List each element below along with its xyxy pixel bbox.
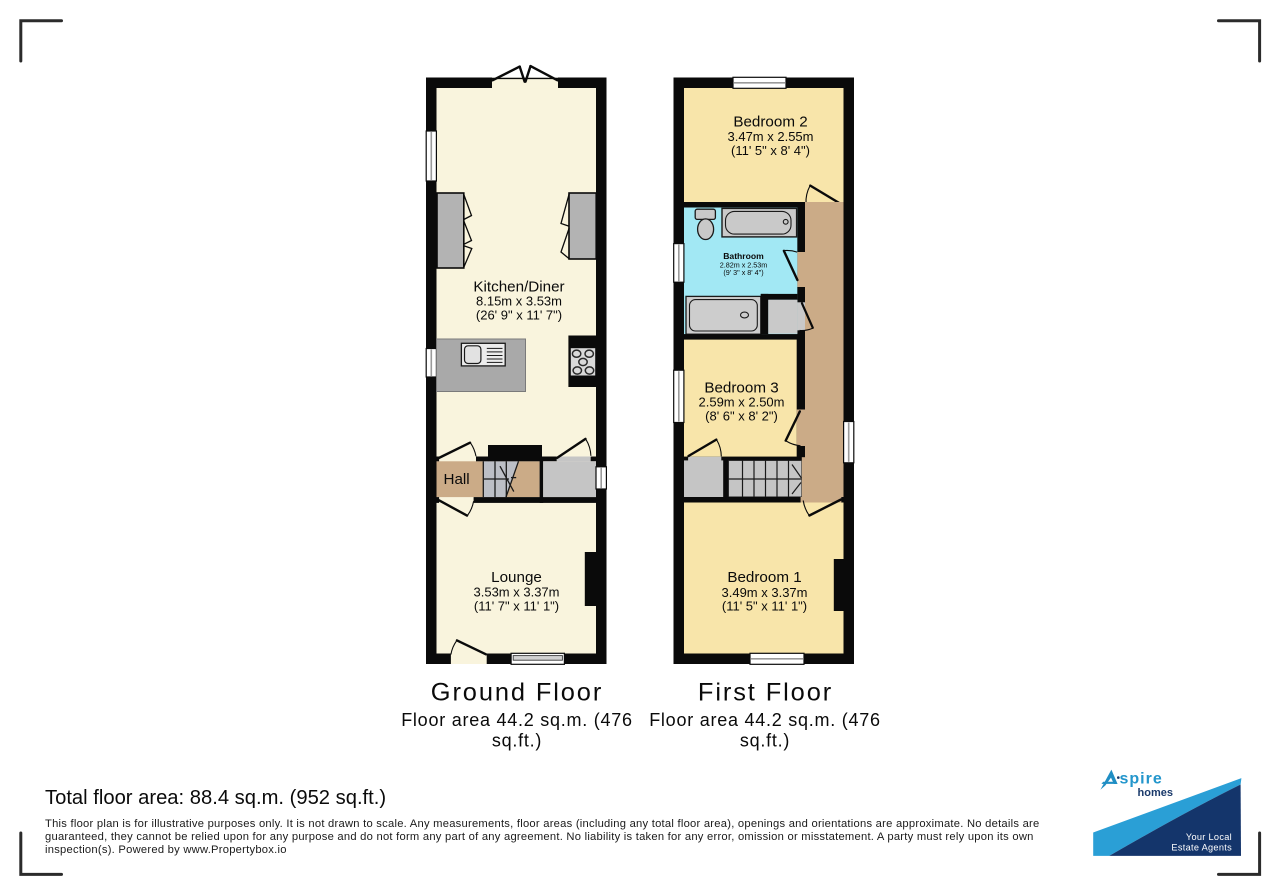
svg-text:Floor area 44.2 sq.m. (476: Floor area 44.2 sq.m. (476: [649, 710, 881, 730]
svg-text:Estate Agents: Estate Agents: [1171, 843, 1232, 853]
svg-text:3.47m x 2.55m: 3.47m x 2.55m: [728, 129, 814, 144]
svg-text:This floor plan is for illustr: This floor plan is for illustrative purp…: [45, 818, 1040, 830]
svg-text:sq.ft.): sq.ft.): [492, 731, 542, 751]
svg-text:Your Local: Your Local: [1186, 832, 1232, 842]
svg-text:sq.ft.): sq.ft.): [740, 731, 790, 751]
svg-text:(11' 7" x 11' 1"): (11' 7" x 11' 1"): [474, 598, 559, 613]
svg-text:homes: homes: [1138, 787, 1173, 799]
svg-text:(26' 9" x 11' 7"): (26' 9" x 11' 7"): [476, 308, 562, 323]
svg-text:2.59m x 2.50m: 2.59m x 2.50m: [699, 394, 785, 409]
svg-text:Ground Floor: Ground Floor: [431, 679, 603, 707]
svg-text:Bathroom: Bathroom: [723, 251, 764, 261]
svg-text:spire: spire: [1120, 770, 1163, 787]
svg-text:Bedroom 2: Bedroom 2: [733, 114, 807, 131]
svg-text:guaranteed, they cannot be rel: guaranteed, they cannot be relied upon f…: [45, 831, 1034, 843]
svg-text:(9' 3" x 8' 4"): (9' 3" x 8' 4"): [723, 268, 763, 277]
svg-text:Floor area 44.2 sq.m. (476: Floor area 44.2 sq.m. (476: [401, 710, 633, 730]
svg-text:inspection(s). Powered by www.: inspection(s). Powered by www.Propertybo…: [45, 844, 287, 856]
svg-text:Bedroom 1: Bedroom 1: [727, 569, 801, 586]
svg-text:(11' 5" x 11' 1"): (11' 5" x 11' 1"): [722, 598, 807, 613]
svg-text:8.15m x 3.53m: 8.15m x 3.53m: [476, 294, 562, 309]
svg-text:(8' 6" x 8' 2"): (8' 6" x 8' 2"): [705, 408, 778, 423]
svg-text:Hall: Hall: [444, 471, 470, 488]
svg-text:3.53m x 3.37m: 3.53m x 3.37m: [474, 584, 560, 599]
svg-text:(11' 5" x 8' 4"): (11' 5" x 8' 4"): [731, 143, 810, 158]
svg-text:First Floor: First Floor: [698, 679, 833, 707]
svg-text:Total floor area: 88.4 sq.m. (: Total floor area: 88.4 sq.m. (952 sq.ft.…: [45, 787, 386, 809]
